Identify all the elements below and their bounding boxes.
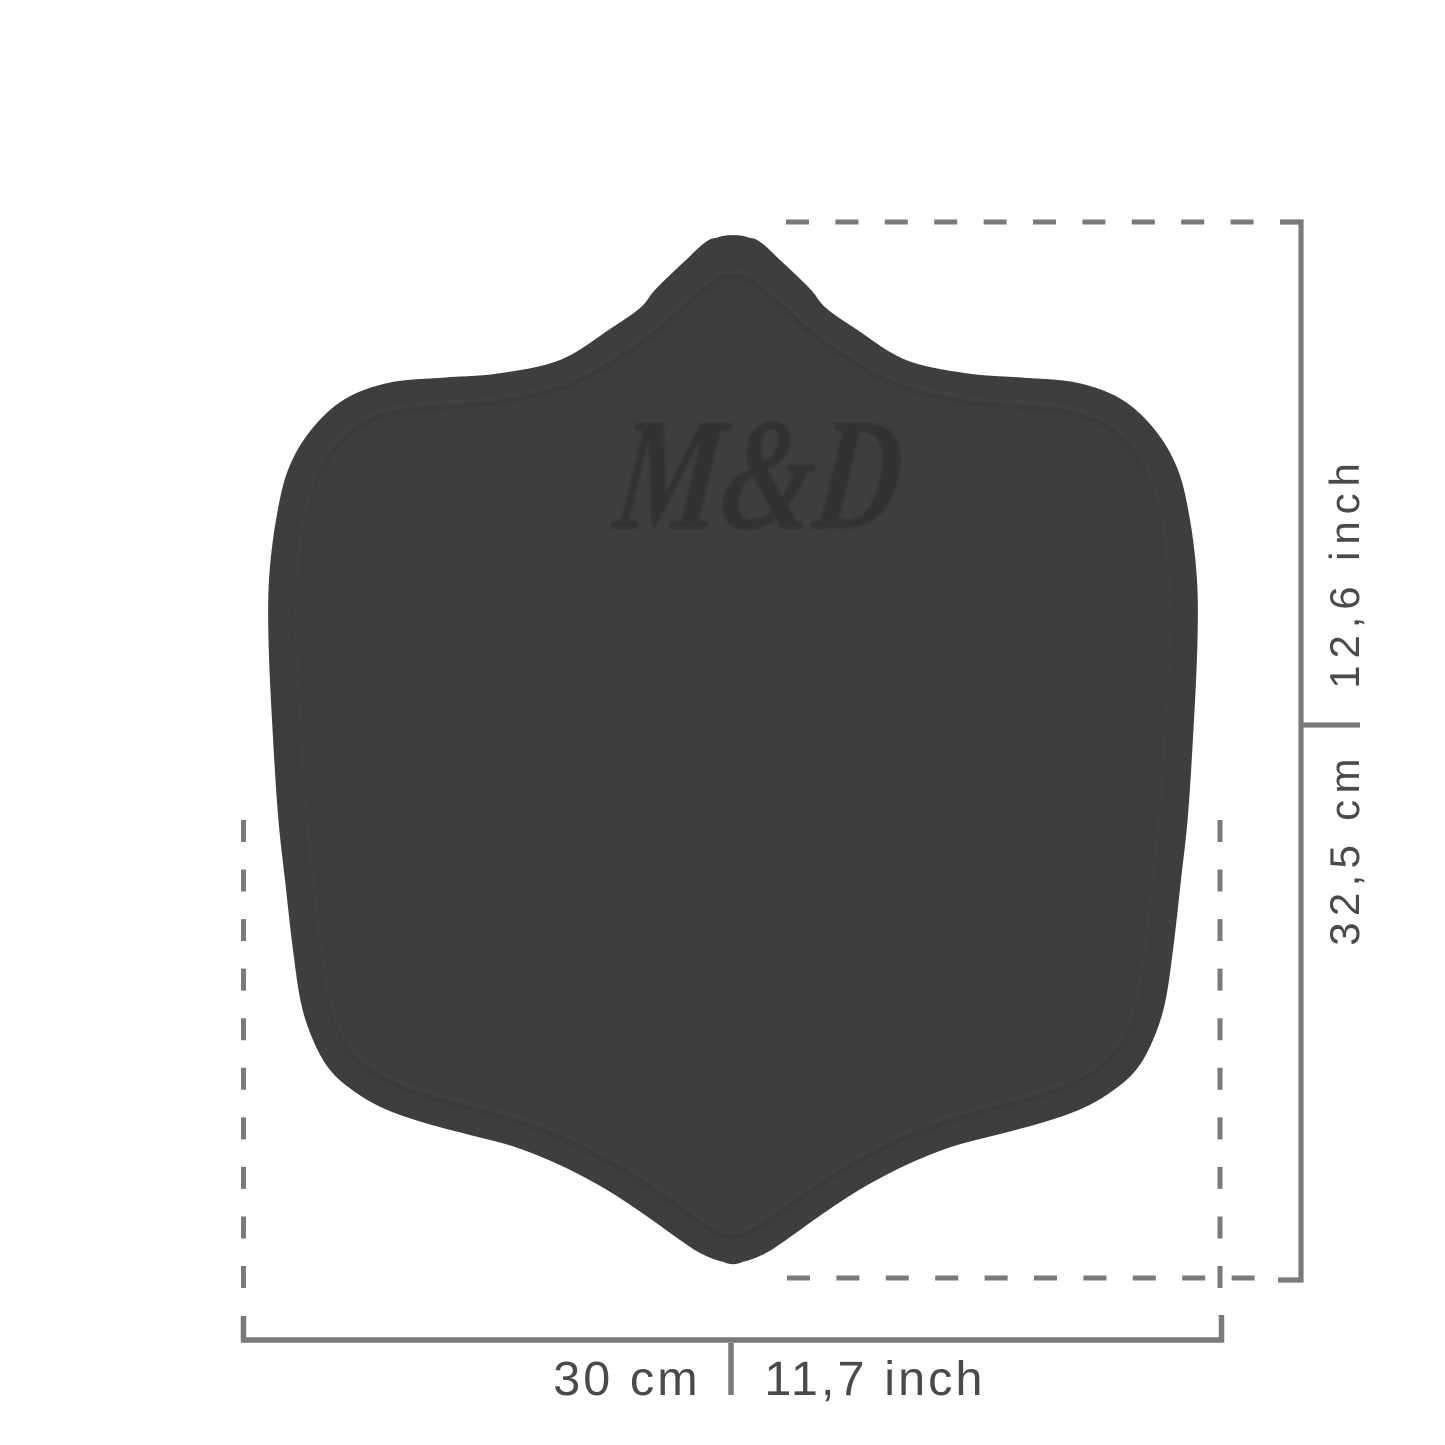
svg-text:11,7 inch: 11,7 inch <box>764 1352 985 1406</box>
svg-text:M&D: M&D <box>606 385 912 563</box>
svg-text:12,6 inch: 12,6 inch <box>1321 456 1368 689</box>
svg-text:32,5 cm: 32,5 cm <box>1321 752 1368 946</box>
svg-text:30 cm: 30 cm <box>553 1352 701 1406</box>
